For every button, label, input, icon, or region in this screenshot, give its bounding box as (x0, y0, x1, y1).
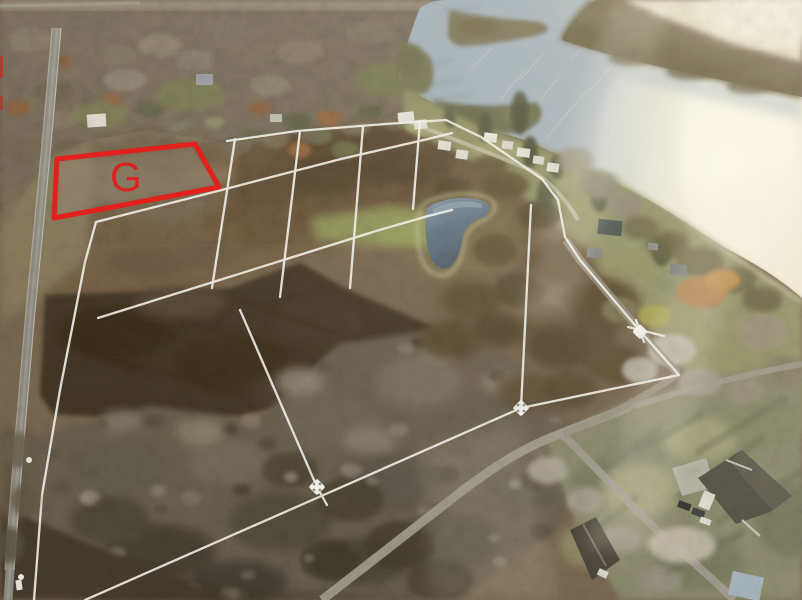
svg-text:G: G (110, 154, 142, 200)
